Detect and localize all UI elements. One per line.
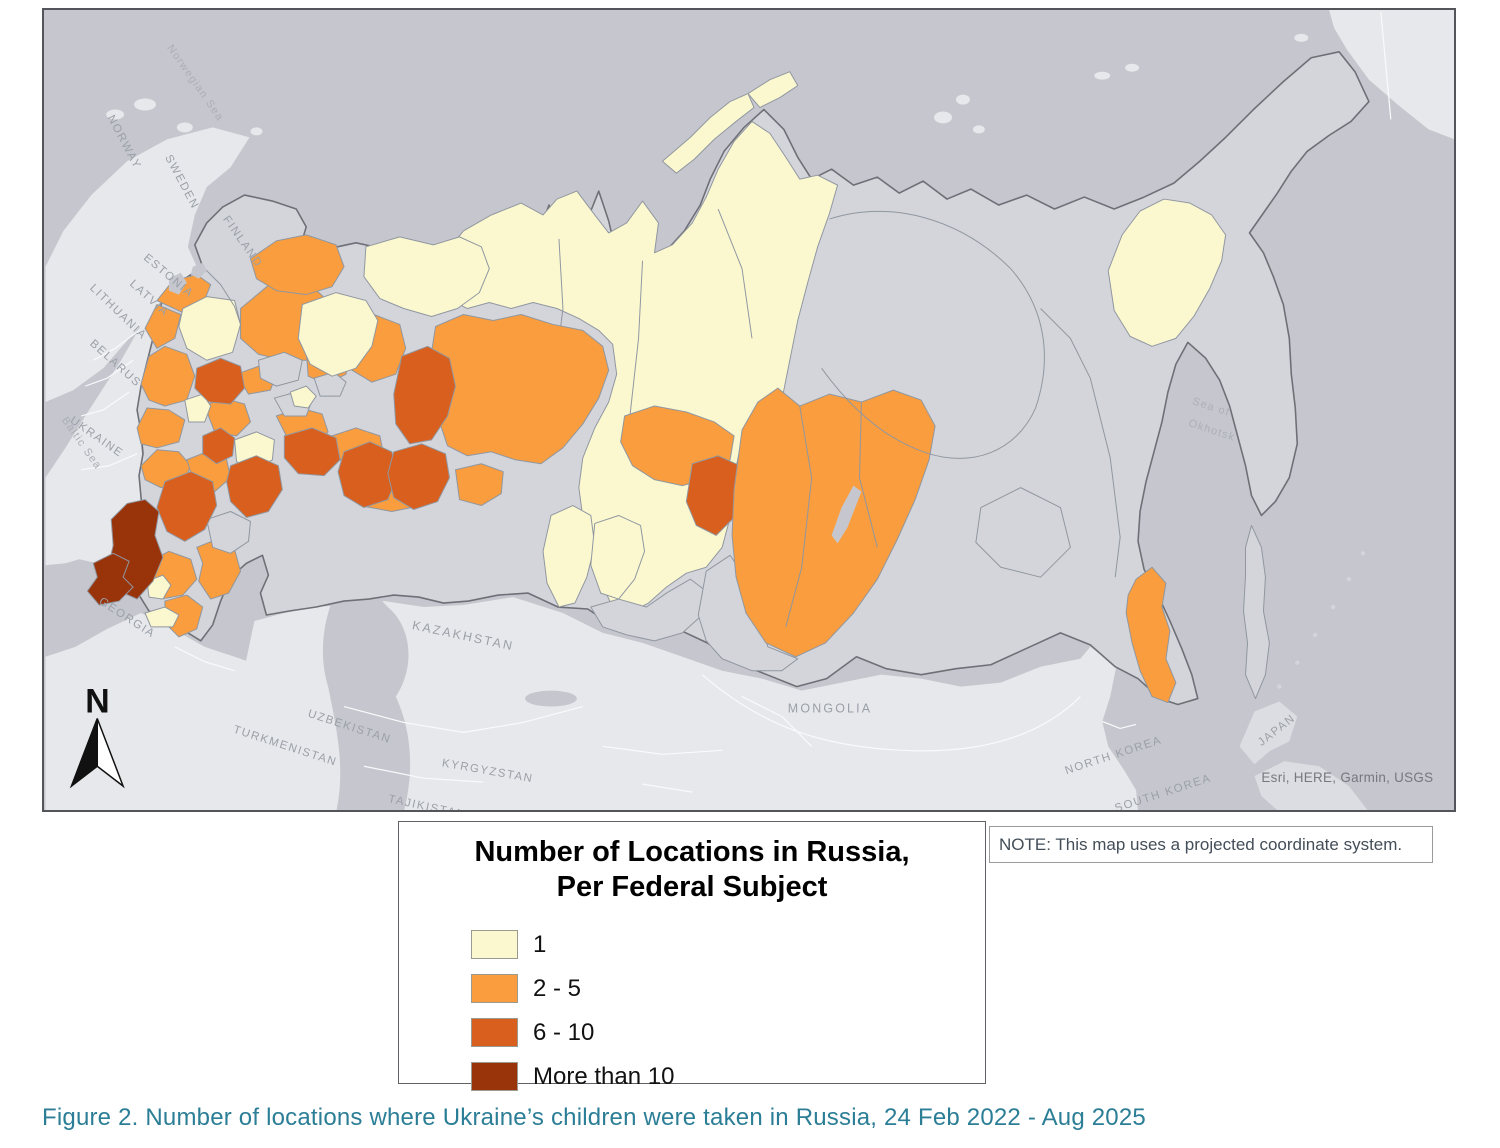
north-arrow-label: N <box>85 682 109 720</box>
legend-label-more-than-10: More than 10 <box>533 1063 674 1091</box>
country-label-mongolia: MONGOLIA <box>788 701 872 715</box>
figure-caption: Figure 2. Number of locations where Ukra… <box>42 1104 1146 1132</box>
note-text: NOTE: This map uses a projected coordina… <box>999 835 1402 855</box>
legend-swatch-2-5 <box>471 974 518 1003</box>
legend-swatch-6-10 <box>471 1018 518 1047</box>
legend-title: Number of Locations in Russia, Per Feder… <box>399 835 985 906</box>
map-attribution: Esri, HERE, Garmin, USGS <box>1261 770 1433 785</box>
legend-swatch-1 <box>471 930 518 959</box>
map-frame: NORWAY SWEDEN FINLAND ESTONIA LATVIA LIT… <box>42 8 1456 812</box>
figure-page: NORWAY SWEDEN FINLAND ESTONIA LATVIA LIT… <box>0 0 1500 1148</box>
legend-box: Number of Locations in Russia, Per Feder… <box>398 821 986 1084</box>
lake-balkhash <box>525 691 577 707</box>
legend-row: 1 <box>471 923 985 967</box>
legend-label-2-5: 2 - 5 <box>533 975 581 1003</box>
legend-label-1: 1 <box>533 931 546 959</box>
note-box: NOTE: This map uses a projected coordina… <box>989 826 1433 863</box>
legend-items: 1 2 - 5 6 - 10 More than 10 <box>471 923 985 1099</box>
legend-title-line2: Per Federal Subject <box>399 870 985 905</box>
legend-row: 6 - 10 <box>471 1011 985 1055</box>
legend-label-6-10: 6 - 10 <box>533 1019 594 1047</box>
legend-swatch-more-than-10 <box>471 1062 518 1091</box>
legend-row: More than 10 <box>471 1055 985 1099</box>
russia-choropleth-map: NORWAY SWEDEN FINLAND ESTONIA LATVIA LIT… <box>44 10 1456 812</box>
legend-row: 2 - 5 <box>471 967 985 1011</box>
legend-title-line1: Number of Locations in Russia, <box>399 835 985 870</box>
